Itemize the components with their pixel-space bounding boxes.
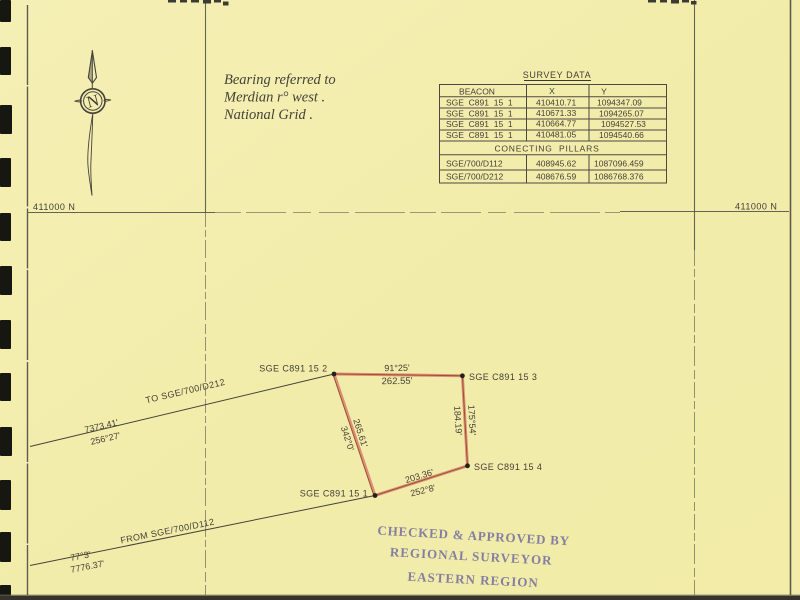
svg-text:SGE C891 15 1: SGE C891 15 1 [300,489,368,499]
svg-text:SGE C891 15 1: SGE C891 15 1 [446,109,513,119]
svg-text:CONECTING PILLARS: CONECTING PILLARS [494,144,599,154]
svg-text:184.19': 184.19' [452,406,464,436]
svg-text:1094347.09: 1094347.09 [597,98,642,108]
svg-text:410671.33: 410671.33 [536,108,576,118]
svg-text:410664.77: 410664.77 [536,119,576,129]
svg-text:410481.05: 410481.05 [536,130,576,140]
svg-text:SGE C891 15 1: SGE C891 15 1 [446,98,513,108]
svg-text:410410.71: 410410.71 [536,98,576,108]
svg-text:Merdian r° west .: Merdian r° west . [223,90,325,106]
svg-text:Y: Y [601,87,607,97]
svg-text:175°54': 175°54' [466,405,478,436]
svg-text:408945.62: 408945.62 [536,159,576,169]
svg-text:91°25': 91°25' [384,363,410,373]
svg-text:BEACON: BEACON [459,87,495,97]
svg-text:1087096.459: 1087096.459 [594,159,644,169]
svg-text:408676.59: 408676.59 [536,172,576,182]
svg-text:1094527.53: 1094527.53 [601,119,646,129]
svg-text:Bearing referred to: Bearing referred to [224,72,336,88]
svg-text:X: X [549,86,555,96]
svg-text:SGE C891 15 1: SGE C891 15 1 [446,130,513,140]
svg-text:411000 N: 411000 N [33,202,75,212]
svg-text:SGE C891 15 2: SGE C891 15 2 [259,364,327,374]
svg-text:411000 N: 411000 N [735,202,777,212]
svg-text:SGE C891 15 4: SGE C891 15 4 [474,462,542,472]
svg-text:National Grid .: National Grid . [223,107,313,123]
svg-text:1086768.376: 1086768.376 [594,172,644,182]
svg-text:262.55': 262.55' [381,376,412,388]
svg-text:SGE C891 15 3: SGE C891 15 3 [469,372,537,382]
svg-text:1094540.66: 1094540.66 [599,130,644,140]
svg-text:SGE/700/D212: SGE/700/D212 [446,172,503,182]
svg-text:SURVEY DATA: SURVEY DATA [523,70,591,80]
svg-text:1094265.07: 1094265.07 [599,109,644,119]
svg-text:SGE C891 15 1: SGE C891 15 1 [446,119,513,129]
svg-text:SGE/700/D112: SGE/700/D112 [446,159,503,169]
